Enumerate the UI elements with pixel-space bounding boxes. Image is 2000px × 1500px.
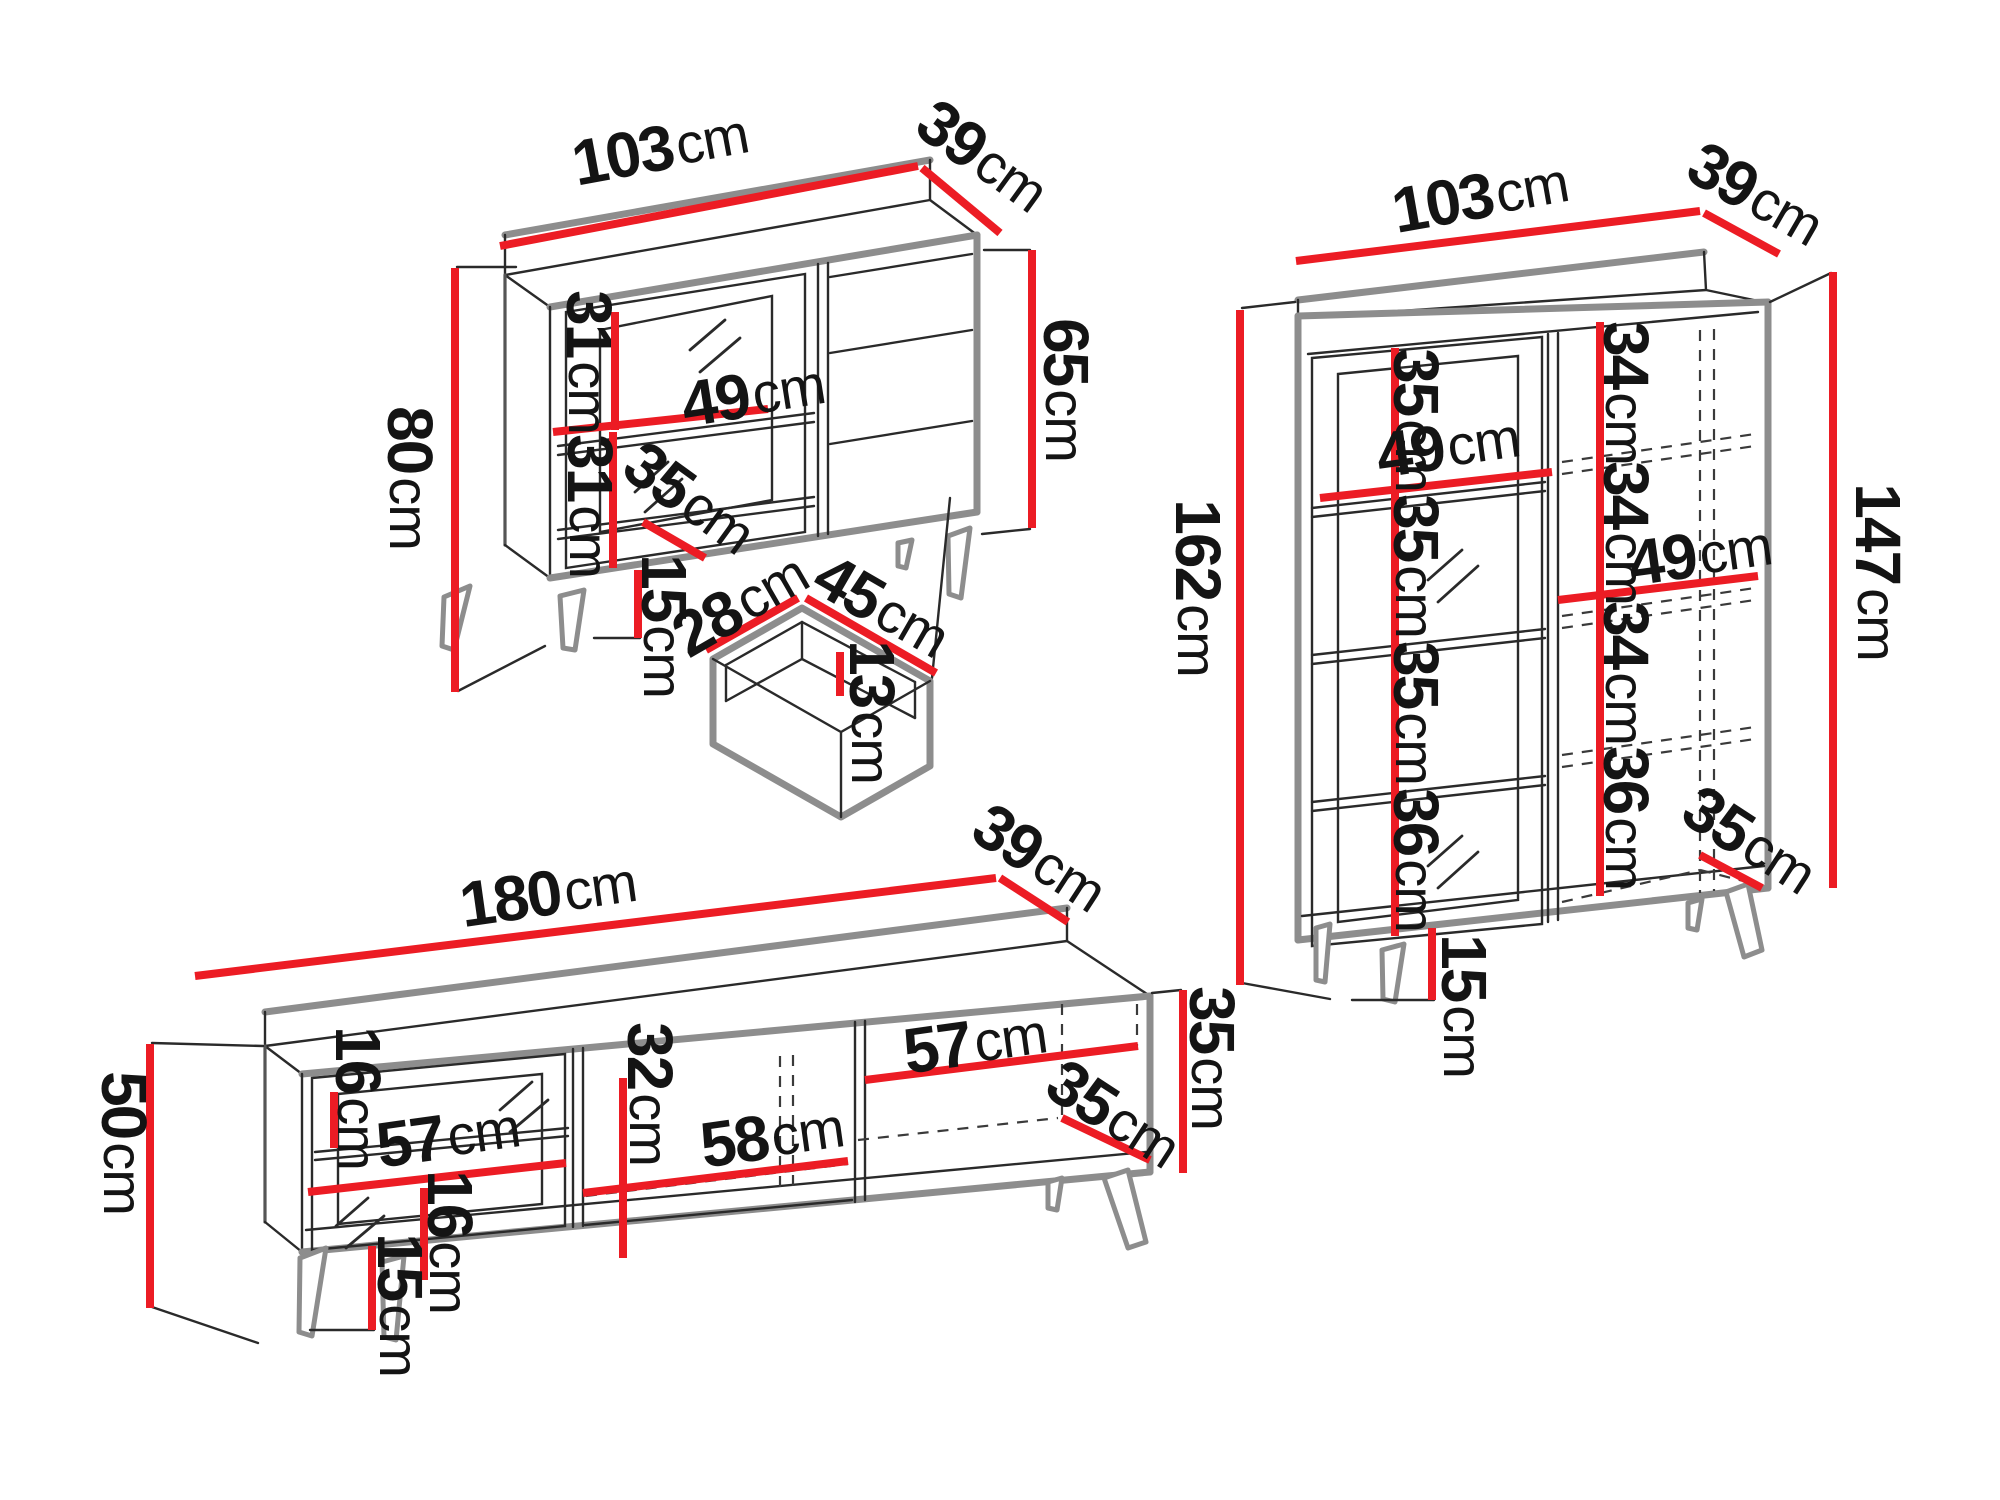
tv-body-height-label: 35cm [1176, 986, 1248, 1130]
tv-height-label: 50cm [88, 1071, 160, 1215]
sideboard-height-label: 80cm [374, 406, 446, 550]
tv-stand-body [265, 908, 1150, 1252]
tv-leg-height-label: 15cm [364, 1233, 436, 1377]
cabinet-leg-height-label: 15cm [1428, 934, 1500, 1078]
cabinet-right-section-1-label: 34cm [1590, 321, 1662, 465]
tv-inner-height-label: 32cm [614, 1022, 686, 1166]
furniture-dimension-diagram: 103cm 39cm 80cm 65cm 31cm 49cm 31cm 35cm… [0, 0, 2000, 1500]
cabinet-body-height-label: 147cm [1842, 483, 1914, 660]
sideboard-top-section-label: 31cm [553, 290, 625, 434]
cabinet-left-section-3-label: 35cm [1380, 641, 1452, 785]
display-cabinet-drawing [1240, 211, 1833, 1002]
sideboard-width-label: 103cm [566, 96, 754, 199]
cabinet-left-section-2-label: 35cm [1380, 494, 1452, 638]
cabinet-right-section-3-label: 34cm [1590, 601, 1662, 745]
cabinet-height-label: 162cm [1162, 499, 1234, 676]
cabinet-left-section-4-label: 36cm [1380, 788, 1452, 932]
drawer-height-label: 13cm [836, 640, 908, 784]
sideboard-bottom-section-label: 31cm [554, 434, 626, 578]
cabinet-width-line [1296, 211, 1700, 261]
sideboard-body-height-label: 65cm [1030, 318, 1102, 462]
cabinet-right-section-4-label: 36cm [1590, 746, 1662, 890]
diagram-canvas: 103cm 39cm 80cm 65cm 31cm 49cm 31cm 35cm… [0, 0, 2000, 1500]
